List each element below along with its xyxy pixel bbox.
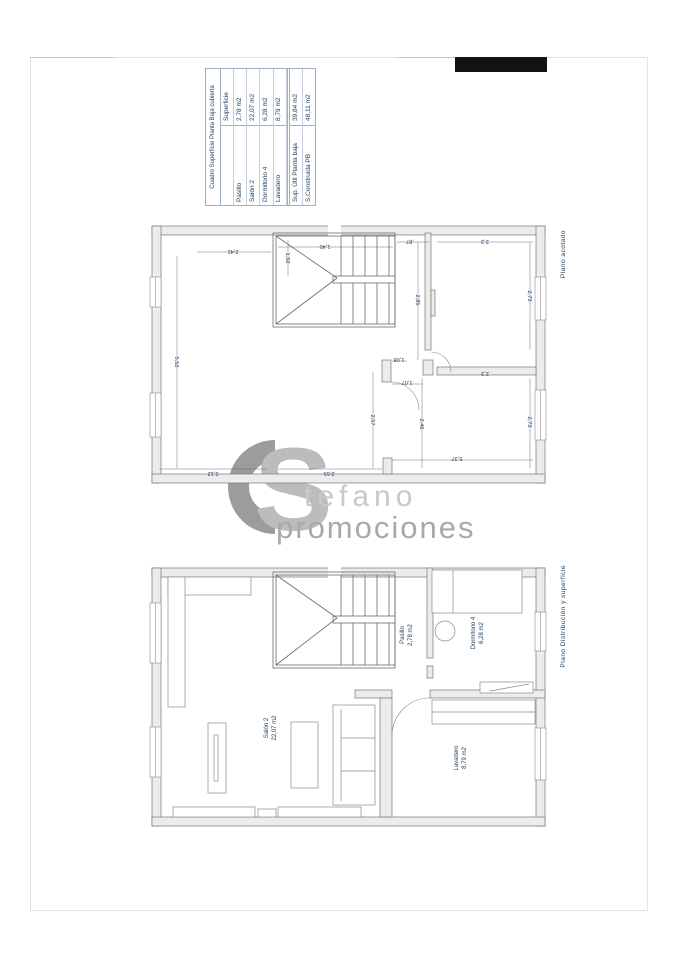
dimension-label: 2,3 (481, 370, 489, 376)
sofa (333, 705, 375, 805)
table-row-total-construida: S.Construida PB 48,11 m2 (303, 69, 315, 205)
staircase (273, 572, 395, 668)
floor-plan-furnished: Pasillo 2,78 m2 Dormitorio 4 6,28 m2 Sal… (145, 563, 555, 835)
room-label: Pasillo (400, 626, 406, 644)
table-row: Lavadero 8,79 m2 (274, 69, 287, 205)
redaction-bar (455, 57, 547, 72)
surface-table-title: Cuadro Superficie Planta Baja cubierta (206, 69, 221, 205)
row-label: Pasillo (234, 125, 246, 205)
dimension-labels: 2,41 1,45 ,87 2,3 5,52 1,92 2,85 2,73 1,… (173, 238, 532, 476)
row-label: Lavadero (274, 125, 286, 205)
bed (432, 570, 522, 613)
shelf (278, 807, 361, 817)
row-label: Sup. Útil Planta baja (290, 125, 302, 205)
stool (435, 621, 455, 641)
row-label: Salón 2 (247, 125, 259, 205)
room-label: Dormitorio 4 (471, 616, 477, 649)
frame-accent-left (30, 57, 115, 58)
wall-notch (258, 809, 276, 817)
surface-table: Cuadro Superficie Planta Baja cubierta S… (205, 68, 316, 206)
room-area: 2,78 m2 (408, 624, 414, 646)
row-value: 39,84 m2 (290, 69, 302, 125)
dimension-label: 2,46 (418, 419, 424, 430)
row-label: Dormitorio 4 (260, 125, 272, 205)
floor-plan-dimensioned: 2,41 1,45 ,87 2,3 5,52 1,92 2,85 2,73 1,… (145, 220, 555, 492)
shelf (173, 807, 255, 817)
dimension-label: 5,37 (452, 455, 463, 461)
room-label: Lavadero (454, 745, 460, 771)
dimension-label: 1,07 (402, 379, 413, 385)
coffee-table (291, 722, 318, 788)
frame-accent-mid (398, 57, 460, 58)
windows (150, 277, 546, 440)
dimension-label: 2,3 (481, 238, 489, 244)
room-area: 22,07 m2 (272, 715, 278, 741)
table-row: Pasillo 2,78 m2 (234, 69, 247, 205)
room-area: 8,79 m2 (462, 747, 468, 769)
dimension-lines (159, 240, 533, 469)
dimension-label: 2,73 (526, 417, 532, 428)
row-label: S.Construida PB (303, 125, 315, 205)
dimension-label: 2,85 (414, 295, 420, 306)
room-area: 6,28 m2 (479, 622, 485, 644)
dimension-label: 5,52 (173, 357, 179, 368)
row-value: 22,07 m2 (247, 69, 259, 125)
dimension-label: 2,41 (228, 248, 239, 254)
wall-gap (328, 567, 341, 578)
wall-gap (328, 225, 341, 236)
interior-walls (382, 233, 536, 474)
plan-top-caption: Plano acotado (560, 230, 567, 278)
outer-walls (152, 226, 545, 483)
table-header-empty (221, 125, 233, 205)
dimension-label: ,87 (406, 238, 414, 244)
table-row-total-util: Sup. Útil Planta baja 39,84 m2 (287, 69, 303, 205)
table-header-superficie: Superficie (221, 69, 233, 125)
dimension-label: 1,92 (284, 253, 290, 264)
counter-side (168, 577, 185, 707)
row-value: 8,79 m2 (274, 69, 286, 125)
room-label: Salón 2 (264, 717, 270, 738)
dimension-label: 2,73 (526, 291, 532, 302)
desk (480, 682, 533, 693)
table-header-row: Superficie (221, 69, 234, 205)
dimension-label: 1,08 (394, 356, 405, 362)
dimension-label: 1,45 (320, 243, 331, 249)
table-row: Dormitorio 4 6,28 m2 (260, 69, 273, 205)
dimension-label: 2,12 (208, 470, 219, 476)
dimension-label: 2,57 (369, 415, 375, 426)
plan-bottom-caption: Plano Distribución y superficie (560, 565, 567, 668)
dimension-label: 2,55 (324, 470, 335, 476)
row-value: 6,28 m2 (260, 69, 272, 125)
row-value: 48,11 m2 (303, 69, 315, 125)
table-row: Salón 2 22,07 m2 (247, 69, 260, 205)
tv-unit-slot (214, 735, 218, 781)
watermark-line2: promociones (276, 510, 475, 546)
door-arc (392, 698, 430, 736)
row-value: 2,78 m2 (234, 69, 246, 125)
